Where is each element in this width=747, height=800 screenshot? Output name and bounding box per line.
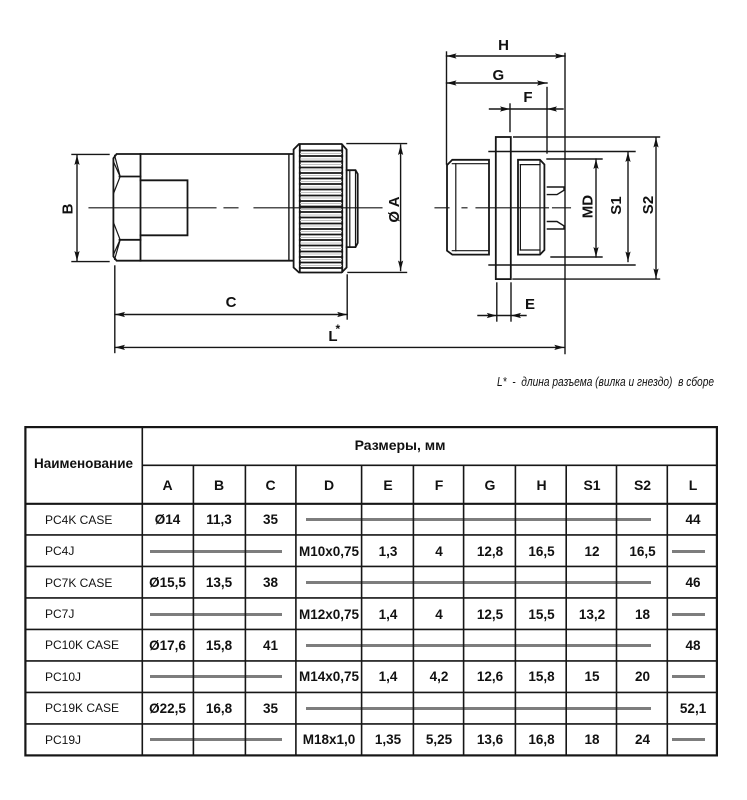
- svg-text:S2: S2: [640, 196, 657, 214]
- svg-text:H: H: [498, 37, 509, 54]
- svg-text:Ø A: Ø A: [386, 196, 403, 222]
- svg-text:G: G: [492, 67, 504, 84]
- svg-text:S1: S1: [608, 196, 625, 214]
- svg-text:MD: MD: [579, 195, 596, 218]
- svg-text:C: C: [226, 294, 237, 311]
- svg-text:F: F: [523, 89, 532, 106]
- svg-text:*: *: [336, 322, 341, 336]
- svg-text:L* - длина разъема (вилка и: L* - длина разъема (вилка и гнездо) в сб…: [497, 375, 714, 389]
- svg-text:B: B: [59, 203, 76, 214]
- svg-text:E: E: [525, 296, 535, 313]
